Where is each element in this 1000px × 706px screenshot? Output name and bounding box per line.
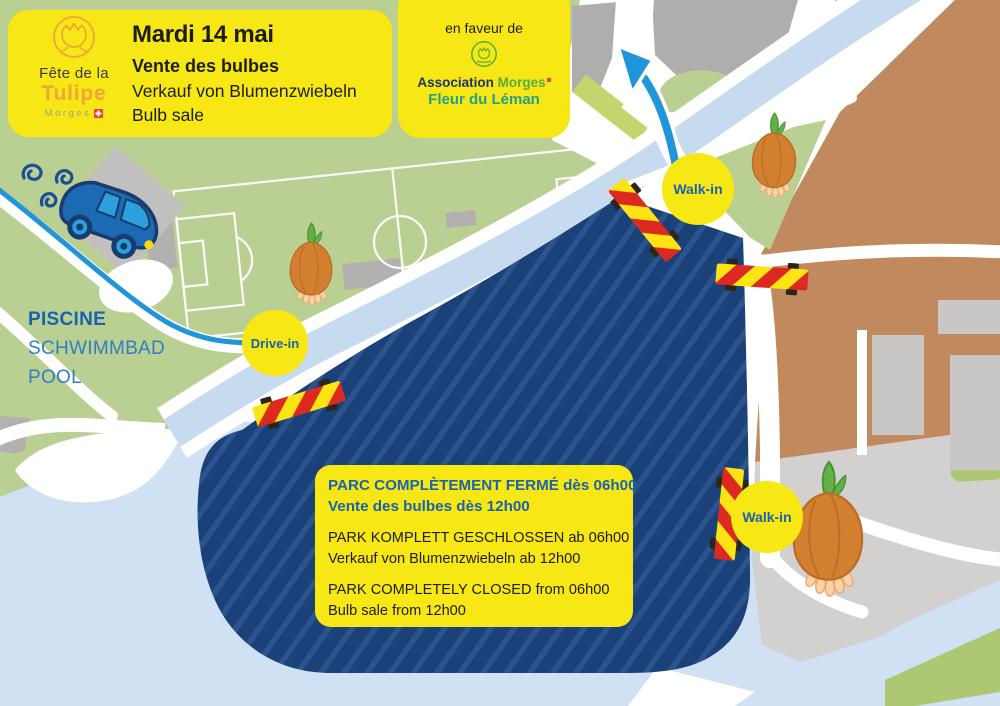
association-logo-icon — [470, 40, 498, 68]
pool-label-en: POOL — [28, 367, 165, 389]
walk-in-east-label: Walk-in — [742, 509, 791, 525]
notice-de-line1: PARK KOMPLETT GESCHLOSSEN ab 06h00 — [328, 528, 620, 549]
pool-label-de: SCHWIMMBAD — [28, 338, 165, 360]
walk-in-marker-east: Walk-in — [731, 481, 803, 553]
closure-notice-box: PARC COMPLÈTEMENT FERMÉ dès 06h00 Vente … — [315, 465, 633, 627]
logo-text-name: Tulipe — [18, 82, 130, 105]
title-banner: Fête de la Tulipe Morges Mardi 14 mai Ve… — [8, 10, 392, 137]
pool-labels: PISCINE SCHWIMMBAD POOL — [28, 309, 165, 396]
sponsor-org-line2: Fleur du Léman — [398, 91, 570, 108]
notice-fr-line1: PARC COMPLÈTEMENT FERMÉ dès 06h00 — [328, 476, 620, 497]
swiss-flag-icon — [94, 109, 103, 118]
walk-in-north-label: Walk-in — [673, 181, 722, 197]
sponsor-bubble: en faveur de Association Morges Fleur du… — [398, 0, 570, 138]
event-logo: Fête de la Tulipe Morges — [18, 15, 130, 119]
notice-de-line2: Verkauf von Blumenzwiebeln ab 12h00 — [328, 549, 620, 570]
notice-en-line2: Bulb sale from 12h00 — [328, 601, 620, 622]
sponsor-intro: en faveur de — [398, 20, 570, 36]
logo-text-city: Morges — [18, 108, 130, 119]
logo-city-label: Morges — [45, 108, 92, 119]
banner-line-de: Verkauf von Blumenzwiebeln — [132, 81, 357, 102]
logo-text-top: Fête de la — [18, 65, 130, 82]
banner-text: Mardi 14 mai Vente des bulbes Verkauf vo… — [132, 21, 357, 129]
sponsor-org-association: Association — [417, 75, 494, 90]
sponsor-org-line1: Association Morges — [398, 75, 570, 90]
tulip-logo-icon — [52, 15, 96, 59]
drive-in-label: Drive-in — [251, 336, 299, 351]
sponsor-red-square-icon — [547, 78, 551, 82]
banner-line-fr: Vente des bulbes — [132, 56, 357, 77]
event-poster: Fête de la Tulipe Morges Mardi 14 mai Ve… — [0, 0, 1000, 706]
walk-in-marker-north: Walk-in — [662, 153, 734, 225]
notice-en-line1: PARK COMPLETELY CLOSED from 06h00 — [328, 580, 620, 601]
pool-label-fr: PISCINE — [28, 309, 165, 331]
event-date-title: Mardi 14 mai — [132, 21, 357, 49]
banner-line-en: Bulb sale — [132, 105, 357, 126]
sponsor-org-morges: Morges — [498, 75, 546, 90]
notice-fr-line2: Vente des bulbes dès 12h00 — [328, 497, 620, 518]
drive-in-marker: Drive-in — [242, 310, 308, 376]
